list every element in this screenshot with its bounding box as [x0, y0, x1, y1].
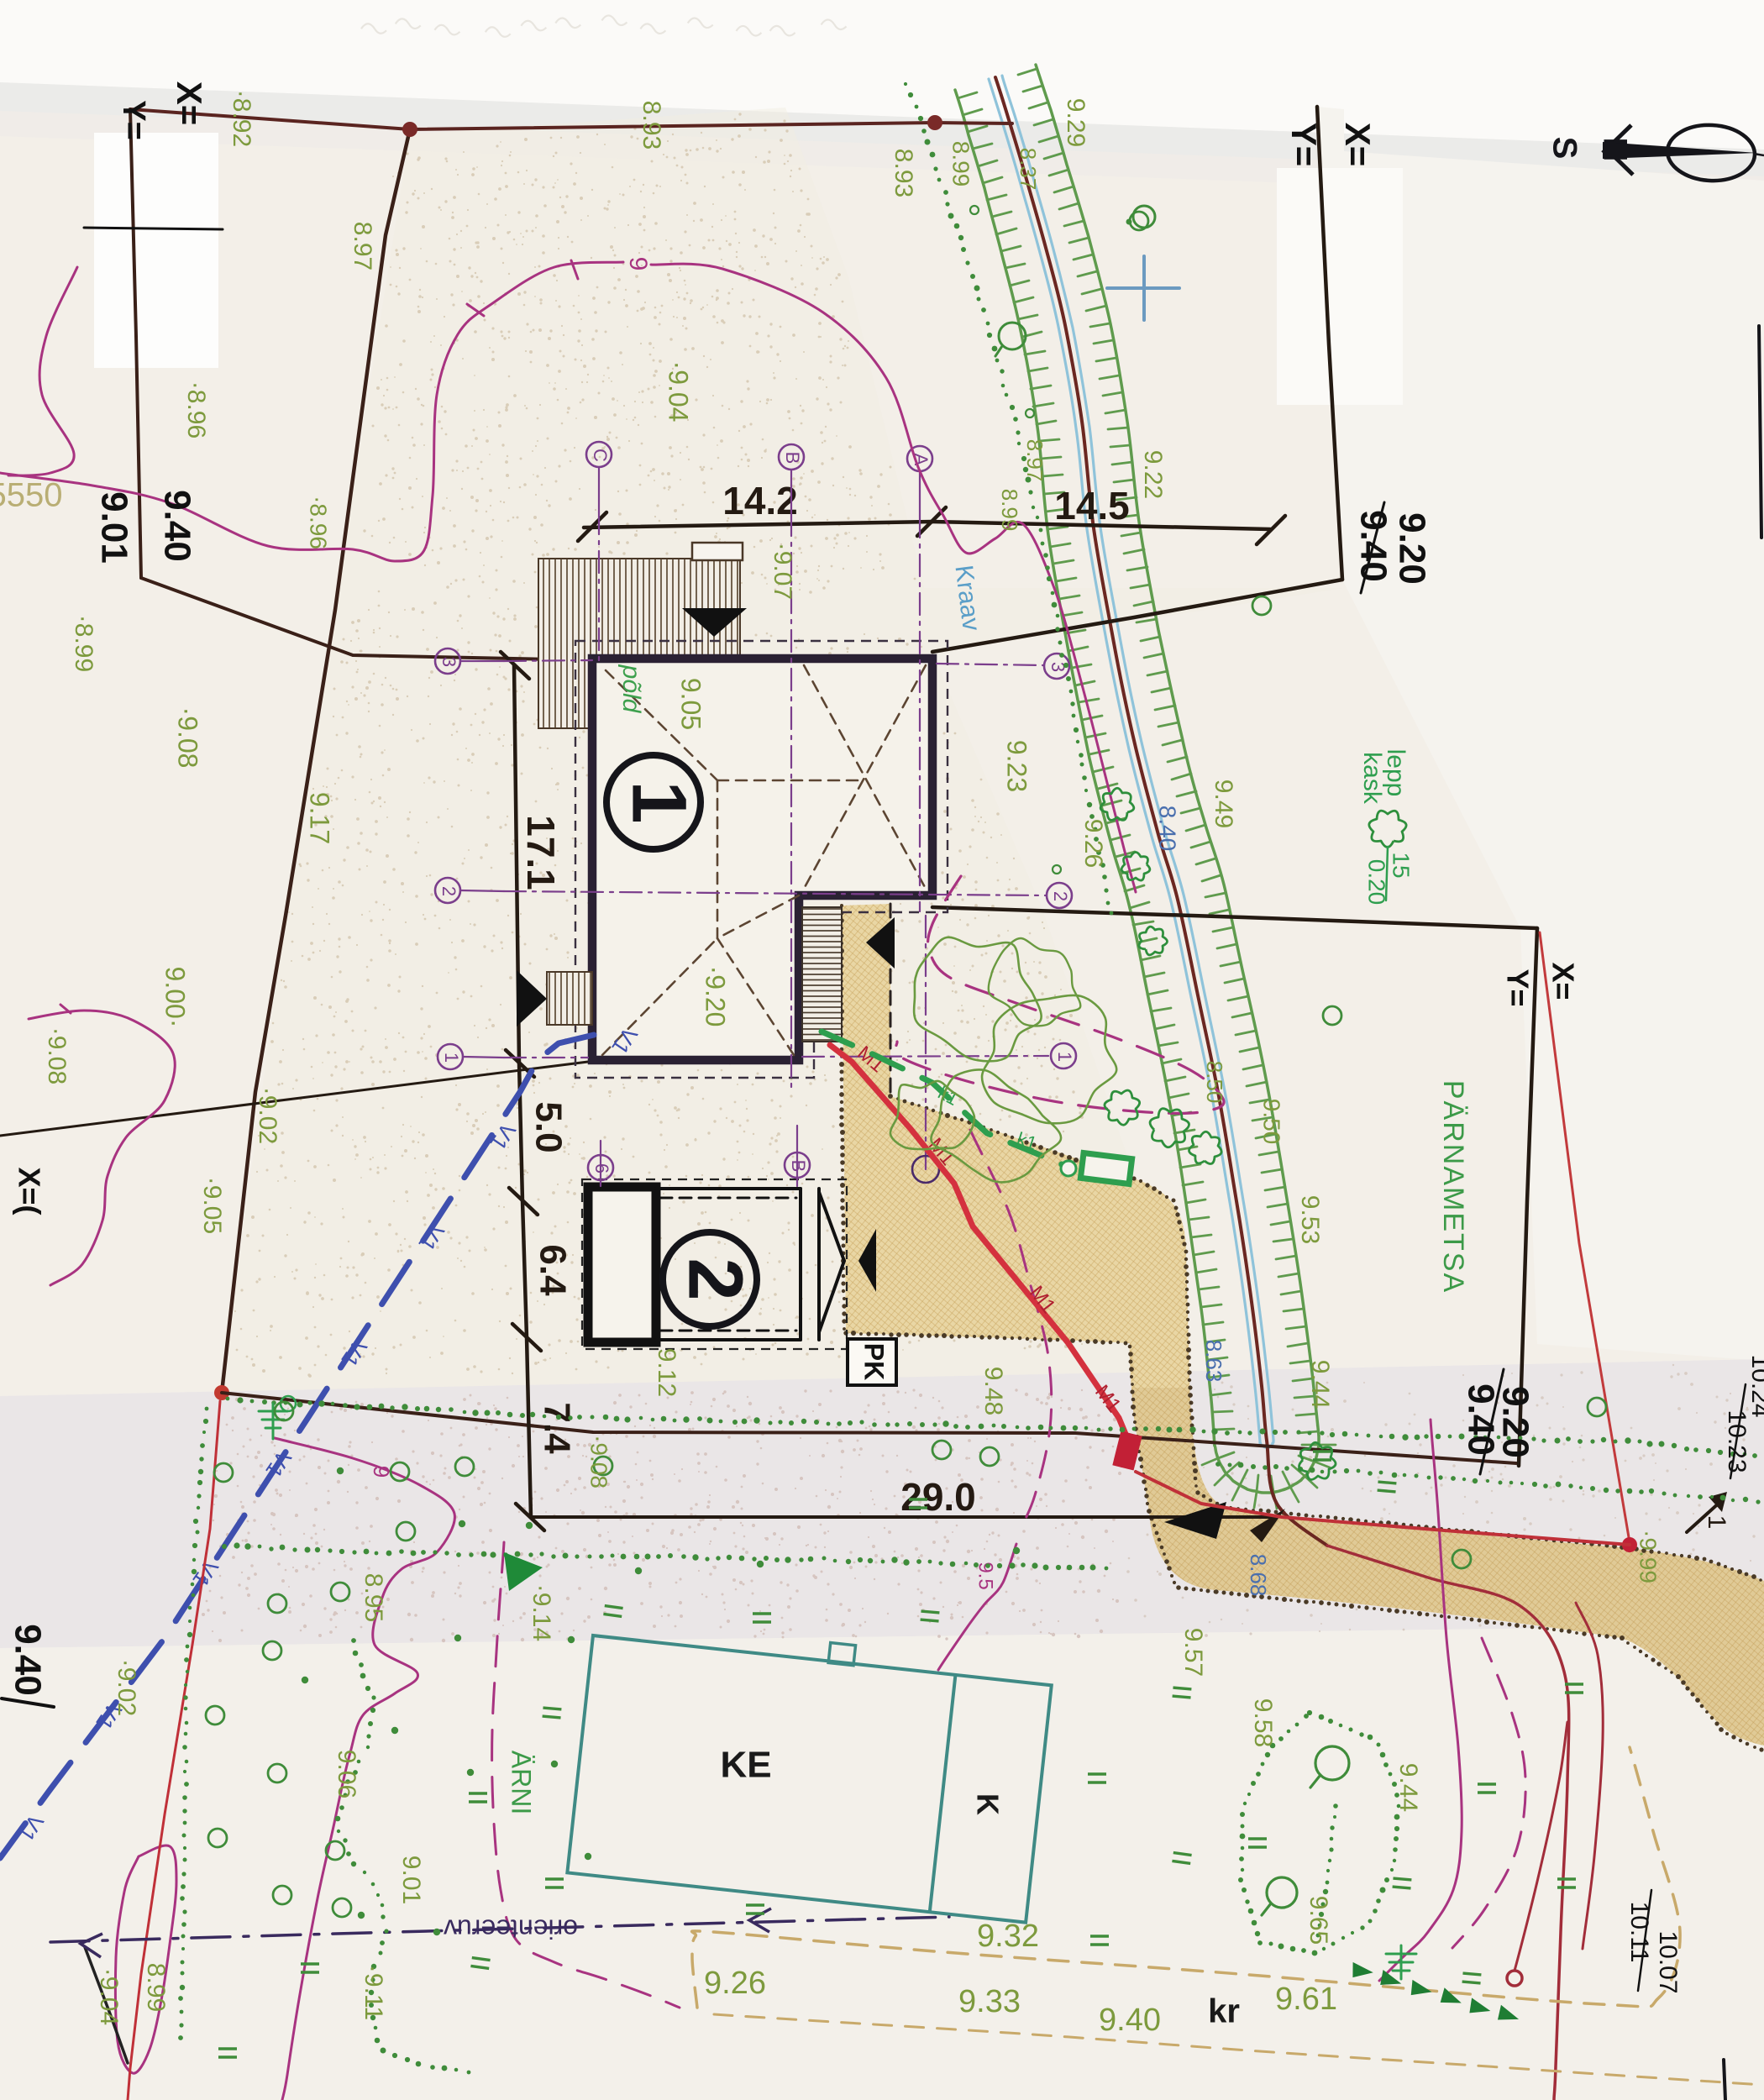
svg-text:B: B	[788, 1160, 809, 1173]
svg-text:5.0: 5.0	[528, 1101, 569, 1152]
svg-text:K: K	[970, 1793, 1005, 1815]
svg-text:17.1: 17.1	[519, 815, 563, 890]
svg-text:2: 2	[1050, 891, 1071, 901]
svg-text:1: 1	[1703, 1515, 1730, 1530]
svg-text:B: B	[782, 452, 803, 465]
svg-text:2: 2	[673, 1257, 759, 1300]
svg-text:6: 6	[591, 1163, 612, 1173]
svg-text:orienteeruv: orienteeruv	[444, 1914, 578, 1945]
svg-text:9: 9	[624, 257, 652, 271]
svg-text:põld: põld	[617, 664, 645, 714]
svg-text:2: 2	[438, 886, 459, 896]
svg-text:1: 1	[441, 1053, 462, 1063]
svg-text:1: 1	[1054, 1052, 1075, 1062]
svg-text:14.2: 14.2	[722, 479, 798, 522]
svg-text:PK: PK	[859, 1343, 890, 1380]
svg-text:14.5: 14.5	[1054, 484, 1130, 528]
svg-text:1: 1	[617, 780, 702, 823]
svg-text:6.4: 6.4	[532, 1244, 573, 1296]
svg-text:C: C	[590, 449, 611, 462]
svg-text:7.4: 7.4	[536, 1402, 577, 1454]
svg-text:KE: KE	[720, 1745, 771, 1786]
svg-text:3: 3	[438, 657, 459, 667]
svg-text:29.0: 29.0	[900, 1475, 976, 1519]
